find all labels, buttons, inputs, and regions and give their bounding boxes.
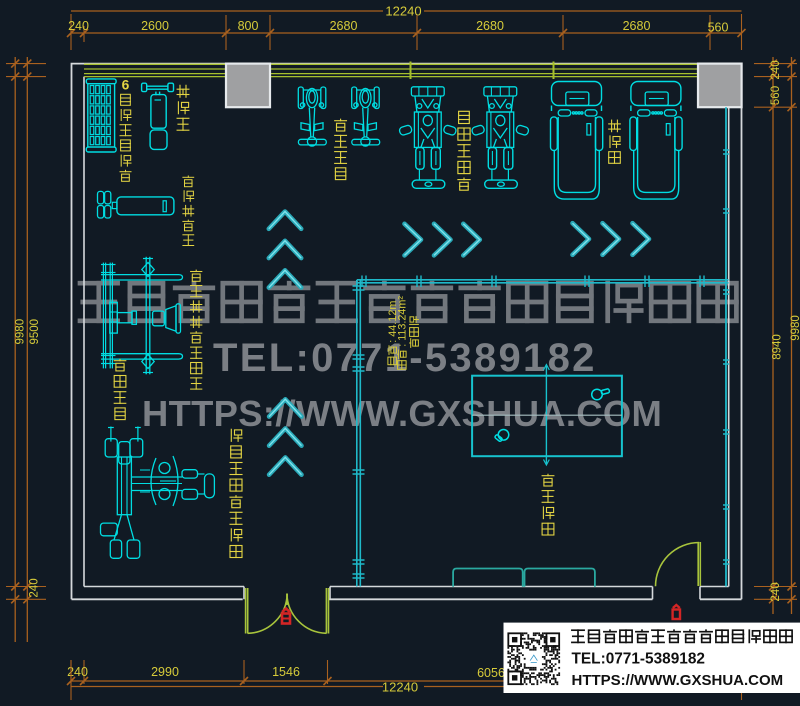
svg-text:240: 240 <box>29 578 41 597</box>
svg-text:240: 240 <box>67 665 88 679</box>
svg-text:12240: 12240 <box>382 680 418 695</box>
svg-text:1546: 1546 <box>272 665 300 679</box>
svg-text:2680: 2680 <box>476 19 504 33</box>
svg-text:560: 560 <box>708 21 729 35</box>
svg-text:TEL:0771-5389182: TEL:0771-5389182 <box>572 651 705 668</box>
svg-text:800: 800 <box>238 19 259 33</box>
svg-text:HTTPS://WWW.GXSHUA.COM: HTTPS://WWW.GXSHUA.COM <box>572 672 784 689</box>
svg-text:240: 240 <box>68 19 89 33</box>
svg-text:12240: 12240 <box>385 4 421 19</box>
svg-text:6: 6 <box>122 78 130 93</box>
svg-text:8940: 8940 <box>772 334 784 360</box>
svg-text:9980: 9980 <box>790 315 800 341</box>
svg-text:HTTPS://WWW.GXSHUA.COM: HTTPS://WWW.GXSHUA.COM <box>142 393 662 434</box>
svg-text:240: 240 <box>770 60 782 79</box>
svg-text:2990: 2990 <box>151 665 179 679</box>
svg-text:: 113.24m²: : 113.24m² <box>397 296 409 347</box>
svg-text:2680: 2680 <box>330 19 358 33</box>
svg-text:9980: 9980 <box>14 319 26 345</box>
svg-text:2680: 2680 <box>623 19 651 33</box>
svg-text:560: 560 <box>770 86 782 105</box>
svg-text:6056: 6056 <box>477 666 505 680</box>
svg-text:2600: 2600 <box>141 19 169 33</box>
svg-text:240: 240 <box>770 582 782 601</box>
svg-text:9500: 9500 <box>29 319 41 345</box>
